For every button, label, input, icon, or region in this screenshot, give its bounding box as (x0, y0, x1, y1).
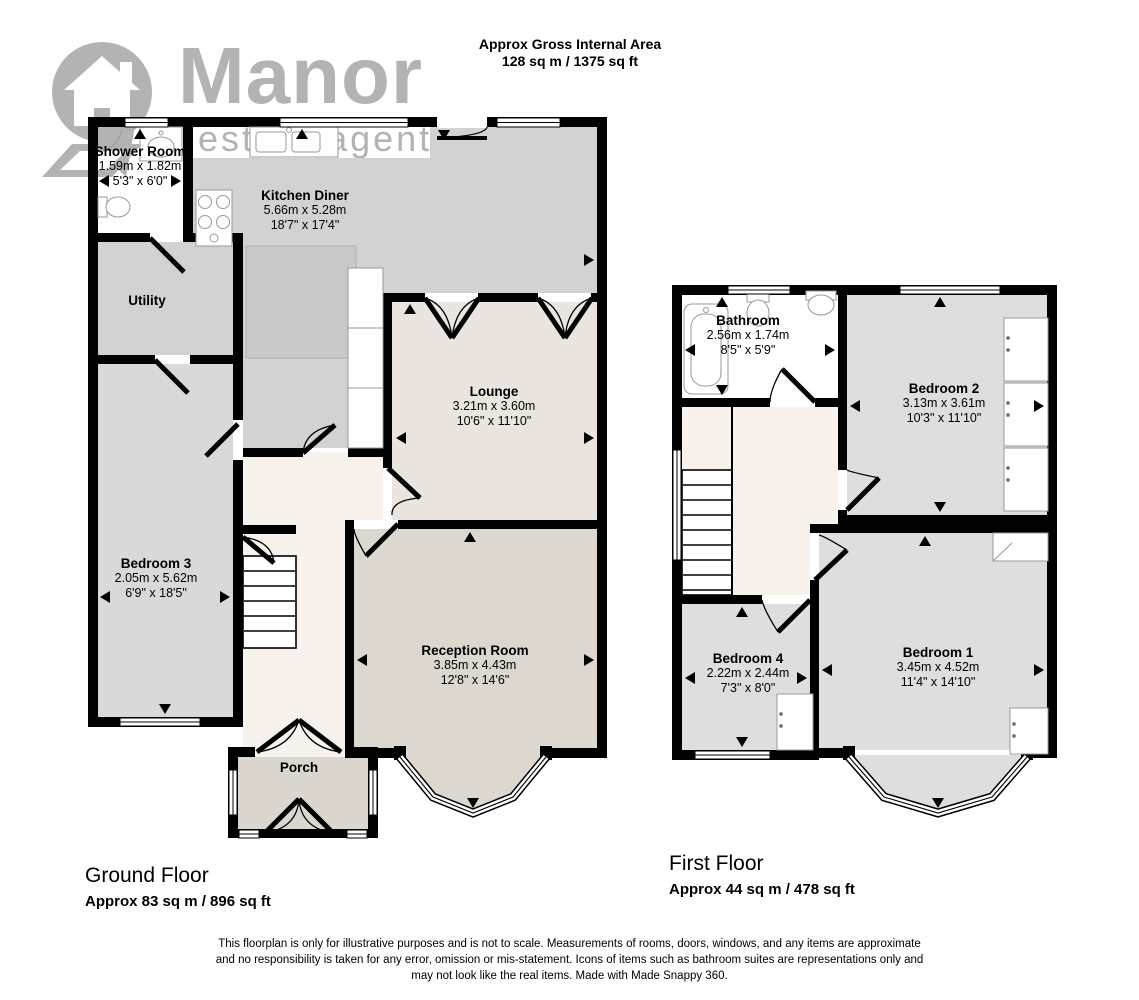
room-dim-imperial: 6'9" x 18'5" (115, 586, 198, 601)
disclaimer-text: This floorplan is only for illustrative … (0, 936, 1139, 984)
room-dim-imperial: 12'8" x 14'6" (421, 673, 528, 688)
room-dim-imperial: 7'3" x 8'0" (707, 681, 790, 696)
first-floor-title: First Floor Approx 44 sq m / 478 sq ft (669, 852, 855, 898)
ground-floor-stairs (243, 556, 296, 648)
room-label-porch: Porch (280, 760, 318, 775)
room-name: Bedroom 2 (903, 381, 986, 396)
disclaimer-line-2: and no responsibility is taken for any e… (0, 952, 1139, 968)
room-dim-metric: 3.21m x 3.60m (453, 399, 536, 414)
room-name: Bedroom 1 (897, 645, 980, 660)
room-label-shower-room: Shower Room 1.59m x 1.82m 5'3" x 6'0" (95, 144, 186, 189)
room-name: Reception Room (421, 643, 528, 658)
floorplan-page: Manor estate agent Approx Gross Internal… (0, 0, 1139, 1000)
disclaimer-line-3: may not look like the real items. Made w… (0, 968, 1139, 984)
first-floor-plan (672, 285, 1057, 813)
kitchen-side-door-opening (437, 116, 487, 128)
room-dim-imperial: 5'3" x 6'0" (95, 174, 186, 189)
room-label-bedroom-4: Bedroom 4 2.22m x 2.44m 7'3" x 8'0" (707, 651, 790, 696)
room-label-bathroom: Bathroom 2.56m x 1.74m 8'5" x 5'9" (707, 313, 790, 358)
room-name: Bedroom 3 (115, 556, 198, 571)
room-label-lounge: Lounge 3.21m x 3.60m 10'6" x 11'10" (453, 384, 536, 429)
disclaimer-line-1: This floorplan is only for illustrative … (0, 936, 1139, 952)
gross-internal-area-heading: Approx Gross Internal Area 128 sq m / 13… (479, 36, 661, 70)
floor-area: Approx 83 sq m / 896 sq ft (85, 893, 271, 910)
room-dim-metric: 3.45m x 4.52m (897, 660, 980, 675)
room-dim-metric: 5.66m x 5.28m (261, 203, 349, 218)
room-name: Bedroom 4 (707, 651, 790, 666)
ground-floor-title: Ground Floor Approx 83 sq m / 896 sq ft (85, 864, 271, 910)
room-dim-imperial: 11'4" x 14'10" (897, 675, 980, 690)
floor-area: Approx 44 sq m / 478 sq ft (669, 881, 855, 898)
gia-value: 128 sq m / 1375 sq ft (479, 53, 661, 70)
floor-name: Ground Floor (85, 864, 271, 888)
floor-name: First Floor (669, 852, 855, 876)
room-name: Shower Room (95, 144, 186, 159)
room-name: Lounge (453, 384, 536, 399)
first-floor-room-fills (682, 295, 1047, 813)
room-dim-imperial: 18'7" x 17'4" (261, 218, 349, 233)
room-name: Porch (280, 760, 318, 775)
room-label-utility: Utility (128, 293, 166, 308)
room-dim-imperial: 10'6" x 11'10" (453, 414, 536, 429)
room-dim-metric: 1.59m x 1.82m (95, 159, 186, 174)
room-label-bedroom-1: Bedroom 1 3.45m x 4.52m 11'4" x 14'10" (897, 645, 980, 690)
room-label-reception-room: Reception Room 3.85m x 4.43m 12'8" x 14'… (421, 643, 528, 688)
room-dim-imperial: 10'3" x 11'10" (903, 411, 986, 426)
room-dim-metric: 3.13m x 3.61m (903, 396, 986, 411)
room-dim-metric: 2.05m x 5.62m (115, 571, 198, 586)
room-name: Bathroom (707, 313, 790, 328)
room-dim-metric: 2.56m x 1.74m (707, 328, 790, 343)
room-dim-imperial: 8'5" x 5'9" (707, 343, 790, 358)
gia-title: Approx Gross Internal Area (479, 36, 661, 53)
room-dim-metric: 2.22m x 2.44m (707, 666, 790, 681)
room-name: Utility (128, 293, 166, 308)
room-dim-metric: 3.85m x 4.43m (421, 658, 528, 673)
room-label-bedroom-3: Bedroom 3 2.05m x 5.62m 6'9" x 18'5" (115, 556, 198, 601)
room-label-kitchen-diner: Kitchen Diner 5.66m x 5.28m 18'7" x 17'4… (261, 188, 349, 233)
room-label-bedroom-2: Bedroom 2 3.13m x 3.61m 10'3" x 11'10" (903, 381, 986, 426)
kitchen-table (246, 246, 356, 358)
room-name: Kitchen Diner (261, 188, 349, 203)
